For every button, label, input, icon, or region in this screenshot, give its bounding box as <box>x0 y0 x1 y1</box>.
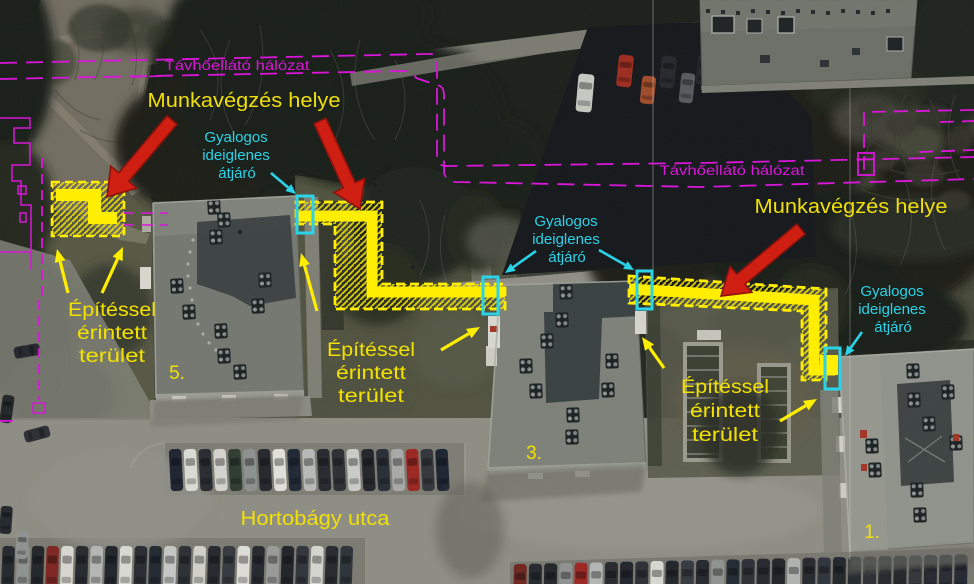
svg-text:érintett: érintett <box>336 363 407 384</box>
svg-text:Építéssel: Építéssel <box>68 300 156 321</box>
svg-text:Hortobágy utca: Hortobágy utca <box>241 508 391 530</box>
svg-text:Munkavégzés helye: Munkavégzés helye <box>755 196 948 218</box>
svg-text:Építéssel: Építéssel <box>681 377 769 398</box>
svg-text:3.: 3. <box>526 443 542 464</box>
svg-text:átjáró: átjáró <box>874 319 912 336</box>
svg-text:Távhőellátó hálózat: Távhőellátó hálózat <box>165 57 310 73</box>
svg-text:terület: terület <box>692 425 759 446</box>
svg-text:1.: 1. <box>864 522 880 543</box>
svg-text:érintett: érintett <box>77 323 148 344</box>
svg-text:ideiglenes: ideiglenes <box>202 147 270 164</box>
svg-text:ideiglenes: ideiglenes <box>532 231 600 248</box>
svg-text:ideiglenes: ideiglenes <box>858 301 926 318</box>
svg-text:Gyalogos: Gyalogos <box>204 129 267 146</box>
svg-text:terület: terület <box>338 386 405 407</box>
svg-text:Gyalogos: Gyalogos <box>860 283 923 300</box>
svg-text:érintett: érintett <box>690 401 761 422</box>
svg-text:átjáró: átjáró <box>548 249 586 266</box>
svg-text:Gyalogos: Gyalogos <box>534 213 597 230</box>
svg-text:Távhőellátó hálózat: Távhőellátó hálózat <box>660 162 805 178</box>
svg-text:5.: 5. <box>169 363 185 384</box>
svg-text:Építéssel: Építéssel <box>327 340 415 361</box>
svg-text:Munkavégzés helye: Munkavégzés helye <box>148 90 341 112</box>
svg-text:átjáró: átjáró <box>218 165 256 182</box>
svg-text:terület: terület <box>79 346 146 367</box>
